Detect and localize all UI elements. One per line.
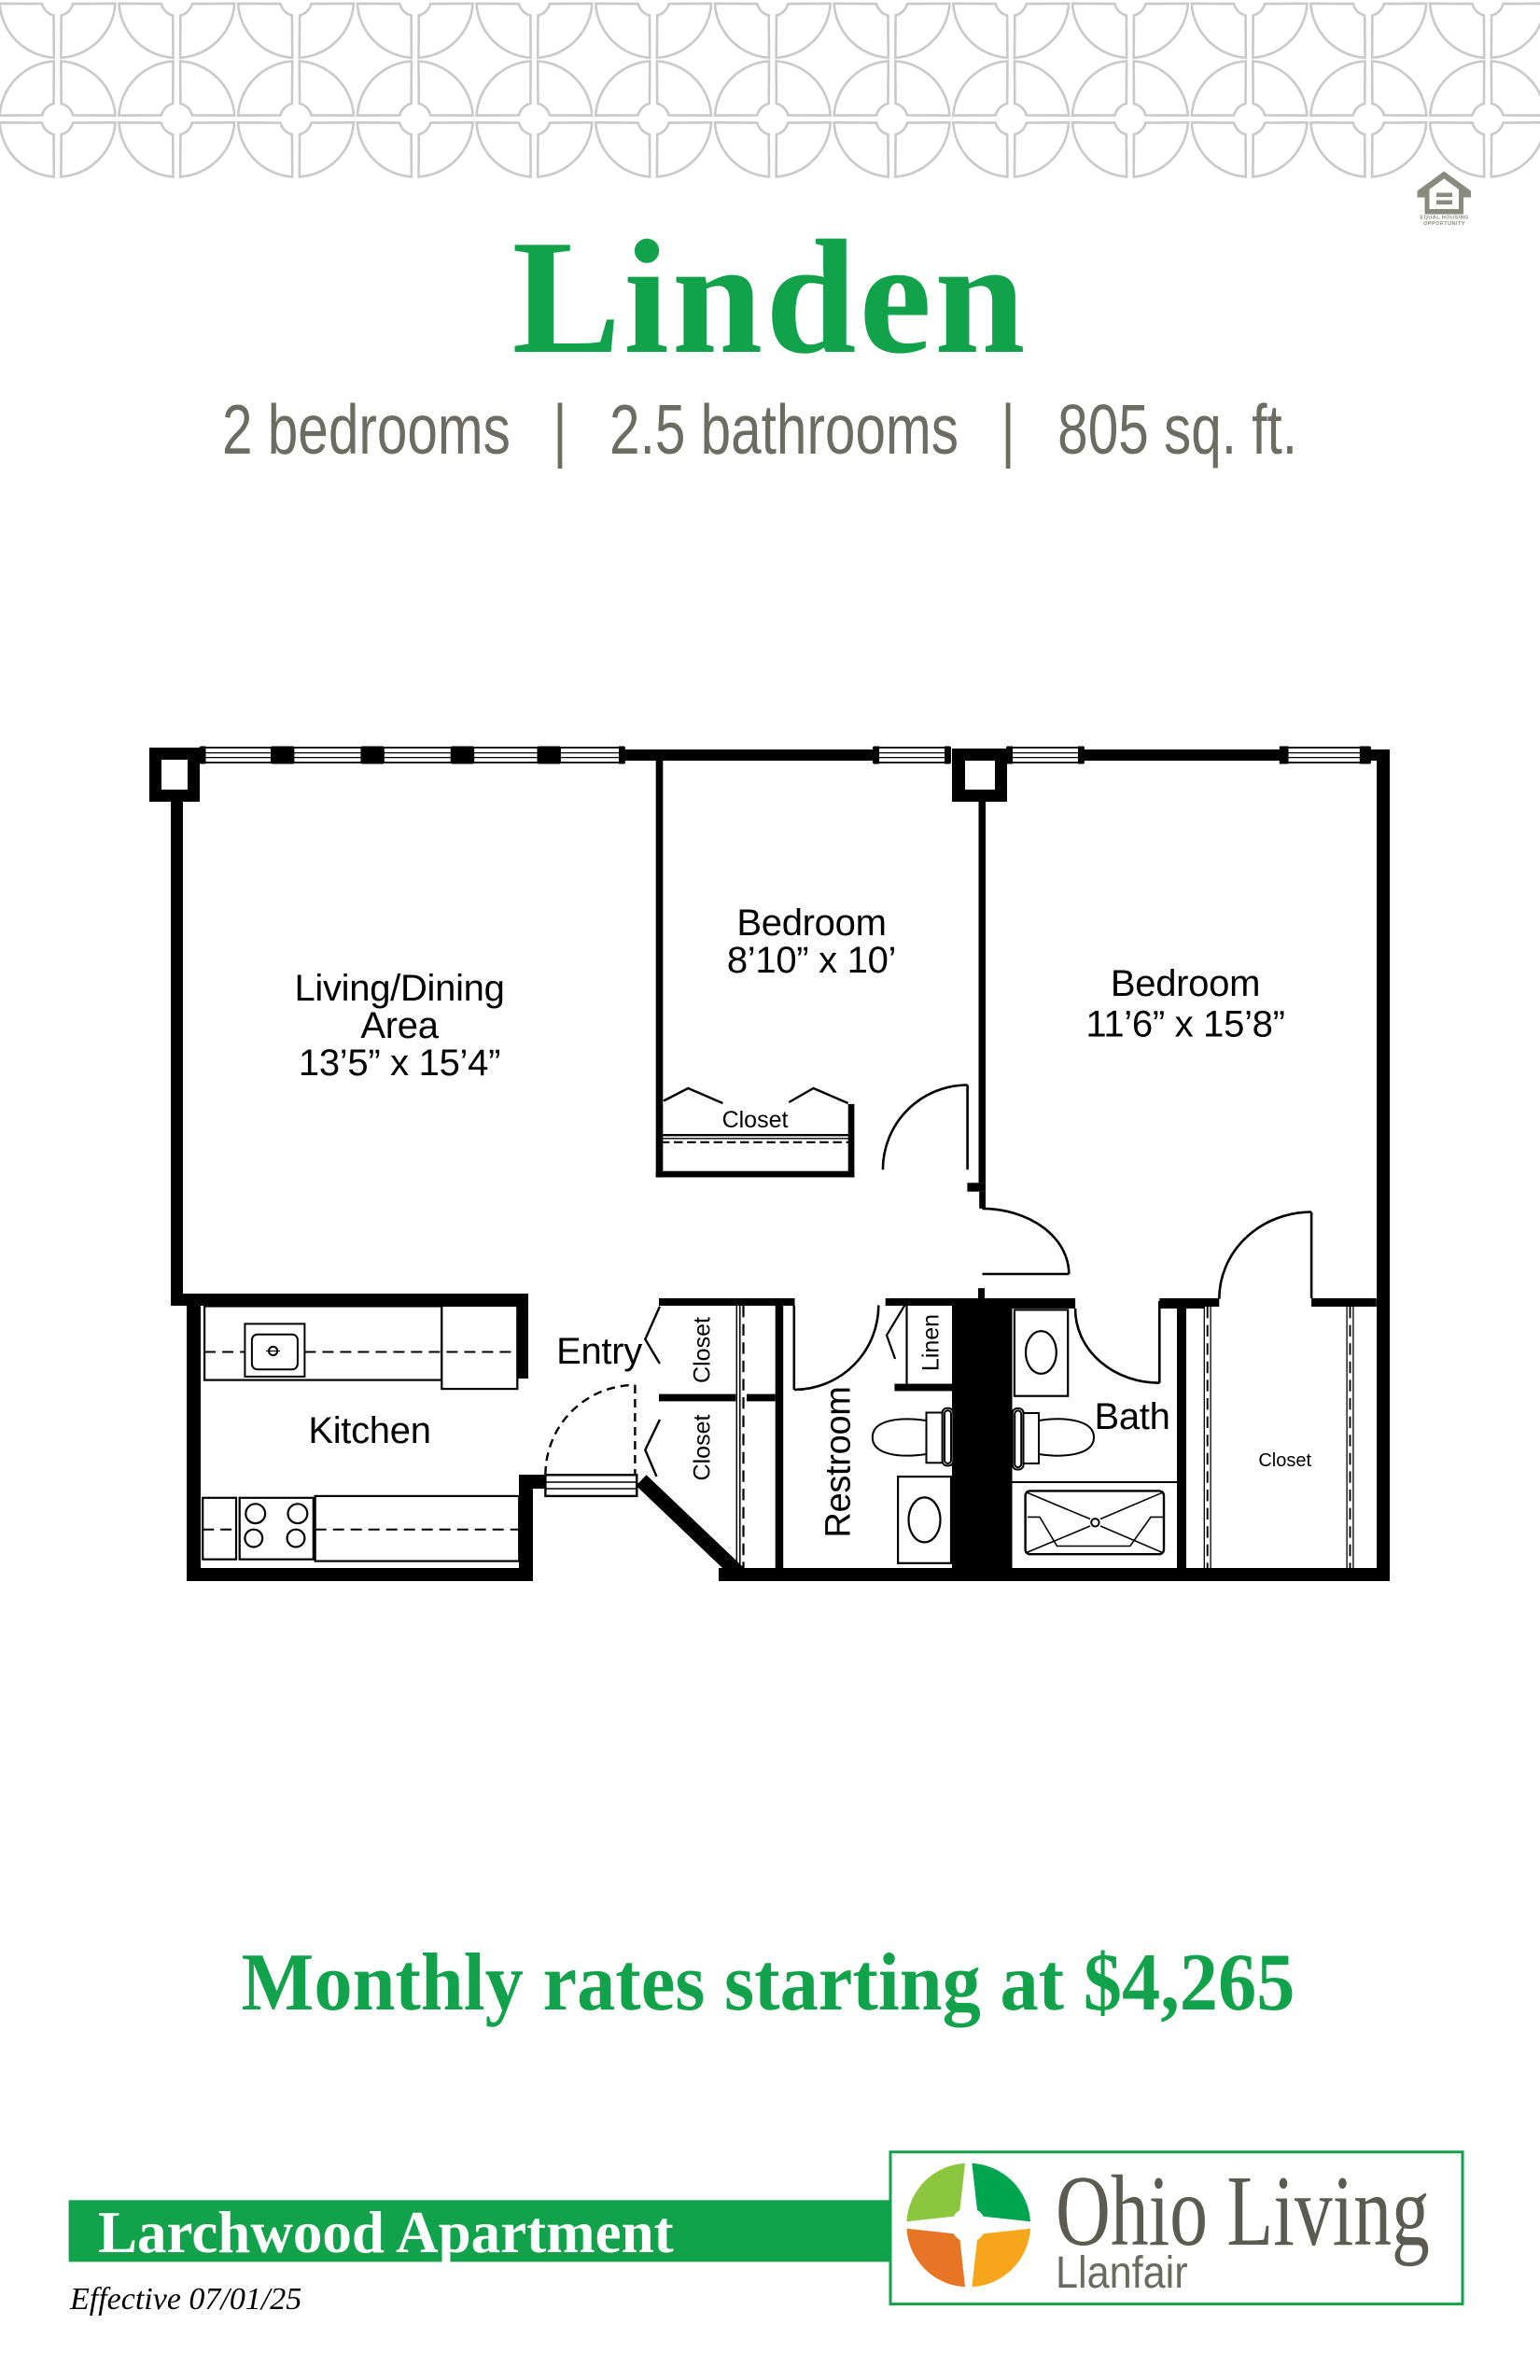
svg-text:Bedroom: Bedroom bbox=[736, 903, 886, 944]
svg-text:Restroom: Restroom bbox=[819, 1386, 859, 1537]
svg-text:Closet: Closet bbox=[722, 1107, 789, 1133]
svg-text:8’10” x 10’: 8’10” x 10’ bbox=[727, 940, 896, 981]
svg-text:2 bedrooms | 2.5 bathrooms: 2 bedrooms | 2.5 bathrooms | 805 sq. ft. bbox=[222, 391, 1297, 469]
svg-text:Monthly rates starting at $4,2: Monthly rates starting at $4,265 bbox=[242, 1938, 1295, 2028]
svg-text:Bedroom: Bedroom bbox=[1111, 963, 1260, 1004]
svg-text:Bath: Bath bbox=[1094, 1396, 1169, 1437]
svg-text:Linen: Linen bbox=[918, 1314, 945, 1371]
svg-text:Kitchen: Kitchen bbox=[308, 1410, 430, 1451]
svg-text:Living/Dining: Living/Dining bbox=[294, 968, 504, 1009]
svg-text:Closet: Closet bbox=[690, 1317, 716, 1383]
svg-text:Effective 07/01/25: Effective 07/01/25 bbox=[69, 2282, 301, 2317]
svg-text:Entry: Entry bbox=[556, 1331, 642, 1372]
svg-text:Closet: Closet bbox=[1258, 1450, 1311, 1471]
svg-text:Llanfair: Llanfair bbox=[1056, 2247, 1188, 2298]
svg-text:EQUAL HOUSING: EQUAL HOUSING bbox=[1420, 216, 1468, 221]
svg-text:Larchwood Apartment: Larchwood Apartment bbox=[98, 2200, 674, 2265]
svg-text:Closet: Closet bbox=[690, 1415, 716, 1481]
svg-text:11’6” x 15’8”: 11’6” x 15’8” bbox=[1085, 1004, 1284, 1045]
svg-text:13’5” x 15’4”: 13’5” x 15’4” bbox=[299, 1043, 500, 1084]
svg-text:Linden: Linden bbox=[512, 206, 1029, 387]
svg-text:Area: Area bbox=[360, 1005, 439, 1046]
svg-text:OPPORTUNITY: OPPORTUNITY bbox=[1423, 221, 1465, 227]
